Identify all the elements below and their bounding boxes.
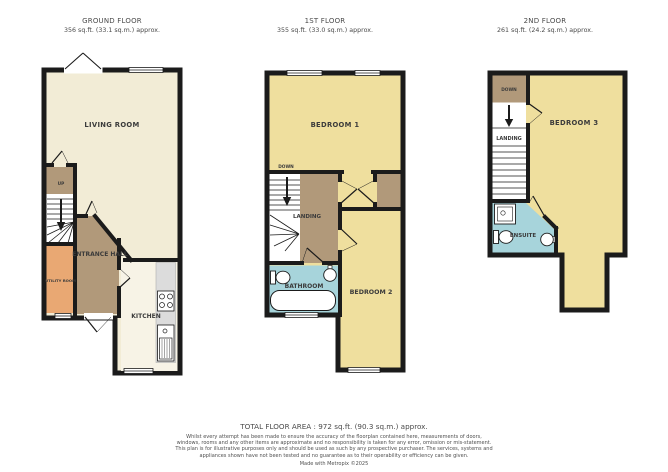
ground-floor-plan: LIVING ROOM ENTRANCE HALL KITCHEN UP UTI… bbox=[44, 53, 180, 374]
disclaimer-text: Whilst every attempt has been made to en… bbox=[174, 434, 494, 459]
total-floor-area: TOTAL FLOOR AREA : 972 sq.ft. (90.3 sq.m… bbox=[0, 422, 668, 431]
bedroom2-window bbox=[348, 368, 380, 373]
cupboard bbox=[377, 174, 401, 207]
landing-label-first: LANDING bbox=[293, 214, 322, 220]
kitchen-sink-icon bbox=[158, 325, 175, 361]
bath-icon bbox=[271, 291, 336, 311]
hob-icon bbox=[158, 291, 175, 311]
floorplans-drawing: LIVING ROOM ENTRANCE HALL KITCHEN UP UTI… bbox=[0, 0, 668, 472]
bathroom-window bbox=[285, 313, 318, 318]
patio-door-opening bbox=[64, 67, 103, 74]
entrance-hall-label: ENTRANCE HALL bbox=[72, 251, 128, 258]
down-label-first: DOWN bbox=[278, 164, 294, 170]
bedroom1-window-right bbox=[355, 71, 380, 76]
second-floor-plan: DOWN LANDING BEDROOM 3 ENSUITE bbox=[490, 73, 625, 310]
shower-icon bbox=[495, 204, 516, 224]
first-floor-plan: BEDROOM 1 DOWN LANDING BATHROOM BEDROOM … bbox=[267, 71, 403, 373]
bedroom3-label: BEDROOM 3 bbox=[550, 119, 599, 127]
bedroom2-label: BEDROOM 2 bbox=[350, 289, 393, 296]
utility-room-label: UTILITY ROOM bbox=[45, 278, 76, 283]
bathroom-label: BATHROOM bbox=[285, 283, 324, 290]
bedroom1-label: BEDROOM 1 bbox=[311, 121, 360, 129]
utility-window bbox=[55, 314, 71, 319]
floorplan-canvas: GROUND FLOOR 356 sq.ft. (33.1 sq.m.) app… bbox=[0, 0, 668, 472]
down-label-second: DOWN bbox=[501, 87, 517, 93]
bedroom1-window-left bbox=[287, 71, 322, 76]
up-label: UP bbox=[58, 181, 65, 187]
kitchen-window bbox=[124, 369, 153, 374]
living-room-window bbox=[129, 68, 163, 73]
patio-door-leaves bbox=[65, 53, 101, 69]
ensuite-label: ENSUITE bbox=[510, 233, 537, 239]
front-door-opening bbox=[84, 313, 113, 320]
living-room-label: LIVING ROOM bbox=[84, 121, 139, 129]
kitchen-label: KITCHEN bbox=[131, 313, 161, 320]
landing-label-second: LANDING bbox=[496, 136, 522, 142]
metropix-credit: Made with Metropix ©2025 bbox=[174, 461, 494, 467]
stairs-up-block bbox=[47, 167, 76, 194]
